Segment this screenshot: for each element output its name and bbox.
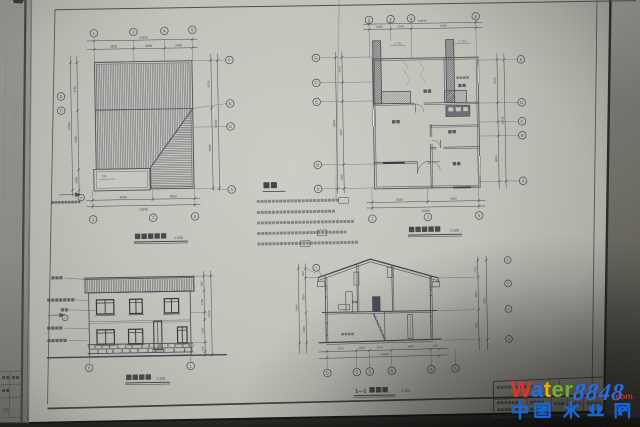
- svg-text:1:100: 1:100: [156, 377, 165, 381]
- svg-text:A: A: [508, 337, 510, 341]
- svg-text:E: E: [520, 57, 523, 62]
- svg-text:C: C: [60, 108, 63, 113]
- svg-text:2100: 2100: [376, 345, 383, 349]
- svg-text:10540: 10540: [332, 119, 336, 127]
- svg-text:10240: 10240: [421, 209, 430, 213]
- svg-text:10540: 10540: [67, 122, 71, 131]
- svg-text:3000: 3000: [474, 322, 478, 329]
- svg-text:C: C: [520, 119, 523, 124]
- svg-text:4000: 4000: [170, 194, 177, 198]
- svg-text:2040: 2040: [376, 25, 383, 29]
- svg-text:G: G: [314, 55, 317, 60]
- svg-text:3000: 3000: [301, 294, 305, 301]
- svg-text:1500: 1500: [200, 298, 204, 305]
- svg-text:4200: 4200: [339, 129, 343, 136]
- svg-text:A: A: [522, 178, 525, 183]
- svg-text:4750: 4750: [493, 77, 497, 84]
- svg-text:B: B: [390, 368, 393, 373]
- svg-text:2700: 2700: [473, 266, 477, 273]
- svg-text:1.700: 1.700: [459, 39, 467, 43]
- svg-text:5030: 5030: [120, 195, 127, 199]
- svg-text:E: E: [229, 101, 232, 106]
- svg-text:D: D: [59, 94, 62, 99]
- svg-text:6600: 6600: [207, 310, 211, 317]
- svg-text:6160: 6160: [440, 24, 447, 28]
- svg-text:3000: 3000: [474, 291, 478, 298]
- svg-text:D: D: [229, 124, 232, 129]
- svg-text:D: D: [326, 371, 329, 376]
- svg-text:A: A: [430, 367, 433, 372]
- svg-text:10240: 10240: [380, 352, 389, 356]
- svg-text:C: C: [355, 370, 358, 375]
- svg-text:1:100: 1:100: [401, 389, 410, 393]
- svg-text:1750: 1750: [338, 66, 342, 73]
- svg-text:A: A: [454, 366, 457, 371]
- svg-text:1200: 1200: [358, 346, 365, 350]
- svg-text:1%: 1%: [101, 174, 106, 178]
- svg-text:1—1: 1—1: [355, 388, 366, 394]
- svg-text:B: B: [316, 162, 319, 167]
- svg-text:3030: 3030: [145, 44, 152, 48]
- svg-text:10240: 10240: [418, 19, 427, 23]
- svg-text:3900: 3900: [407, 344, 414, 348]
- svg-text:10240: 10240: [139, 207, 148, 211]
- svg-text:900: 900: [200, 281, 204, 286]
- svg-text:900: 900: [433, 344, 438, 348]
- svg-text:4800: 4800: [110, 44, 117, 48]
- svg-text:5400: 5400: [74, 136, 78, 143]
- svg-text:2100: 2100: [337, 346, 344, 350]
- svg-text:4750: 4750: [73, 86, 77, 93]
- svg-text:5030: 5030: [396, 198, 403, 202]
- svg-text:3000: 3000: [302, 326, 306, 333]
- svg-text:10540: 10540: [500, 116, 504, 124]
- svg-text:750: 750: [201, 346, 205, 351]
- svg-text:8850: 8850: [482, 297, 486, 304]
- svg-text:E: E: [315, 99, 318, 104]
- svg-text:1:100: 1:100: [450, 228, 459, 232]
- svg-text:A: A: [317, 186, 320, 191]
- svg-text:2040: 2040: [397, 24, 404, 28]
- svg-text:E: E: [507, 258, 509, 262]
- svg-text:05: 05: [3, 408, 9, 414]
- svg-text:4000: 4000: [494, 155, 498, 162]
- svg-text:6900: 6900: [294, 304, 298, 311]
- svg-text:B: B: [521, 133, 524, 138]
- svg-text:4000: 4000: [450, 197, 457, 201]
- svg-text:A: A: [230, 187, 233, 192]
- svg-text:4750: 4750: [207, 80, 211, 87]
- svg-text:D: D: [520, 100, 523, 105]
- svg-text:5400: 5400: [208, 144, 212, 151]
- svg-text:10240: 10240: [139, 36, 148, 40]
- svg-text:2400: 2400: [74, 177, 78, 184]
- svg-text:1.700: 1.700: [394, 41, 402, 45]
- svg-text:2430: 2430: [175, 43, 182, 47]
- svg-text:1500: 1500: [200, 327, 204, 334]
- svg-text:1:100: 1:100: [174, 236, 183, 240]
- svg-text:900: 900: [301, 271, 305, 276]
- svg-text:1640: 1640: [340, 174, 344, 181]
